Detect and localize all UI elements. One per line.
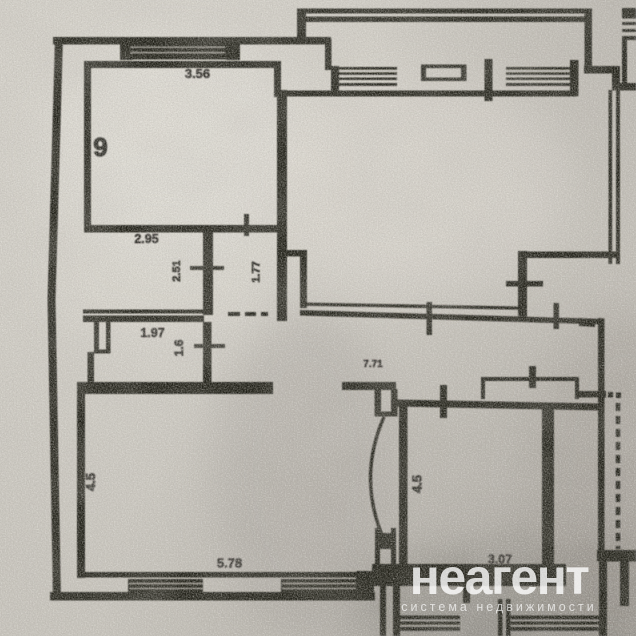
svg-text:неагент: неагент bbox=[410, 549, 590, 605]
svg-text:система недвижимости: система недвижимости bbox=[401, 600, 596, 614]
